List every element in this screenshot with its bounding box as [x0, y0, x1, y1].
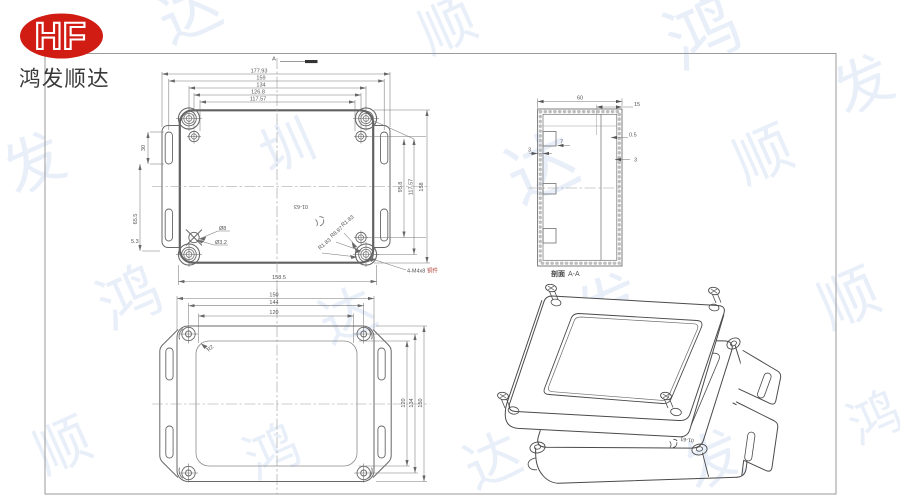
svg-text:HF: HF	[35, 16, 87, 58]
svg-text:铜件: 铜件	[427, 267, 439, 275]
svg-text:3: 3	[528, 148, 531, 154]
svg-text:60: 60	[577, 96, 583, 102]
svg-text:15: 15	[634, 102, 640, 108]
svg-text:95.8: 95.8	[398, 182, 404, 193]
svg-text:134: 134	[409, 398, 415, 407]
svg-text:144: 144	[269, 300, 278, 306]
svg-text:0.5: 0.5	[629, 133, 637, 139]
svg-text:117.57: 117.57	[250, 97, 266, 103]
svg-text:鸿发顺达: 鸿发顺达	[19, 67, 110, 91]
svg-text:A-A: A-A	[568, 271, 580, 278]
svg-text:159: 159	[256, 76, 265, 82]
svg-text:120: 120	[401, 398, 407, 407]
svg-text:5.3: 5.3	[131, 239, 139, 245]
svg-text:117.57: 117.57	[409, 179, 415, 195]
svg-text:150: 150	[418, 398, 424, 407]
svg-text:150: 150	[269, 293, 278, 299]
svg-text:3: 3	[634, 158, 637, 164]
svg-text:120: 120	[269, 310, 278, 316]
svg-text:7: 7	[560, 140, 563, 146]
svg-text:01-63: 01-63	[294, 203, 308, 209]
svg-text:158: 158	[419, 182, 425, 191]
svg-text:30: 30	[141, 145, 147, 151]
svg-text:剖面: 剖面	[551, 269, 565, 278]
svg-text:4-M4x8: 4-M4x8	[407, 269, 425, 275]
svg-text:™: ™	[96, 15, 102, 22]
svg-text:177.93: 177.93	[251, 69, 268, 75]
svg-text:A: A	[272, 57, 276, 63]
svg-text:126.8: 126.8	[251, 90, 265, 96]
svg-text:65.5: 65.5	[133, 214, 139, 225]
svg-text:134: 134	[256, 83, 265, 89]
svg-text:158.5: 158.5	[272, 275, 286, 281]
